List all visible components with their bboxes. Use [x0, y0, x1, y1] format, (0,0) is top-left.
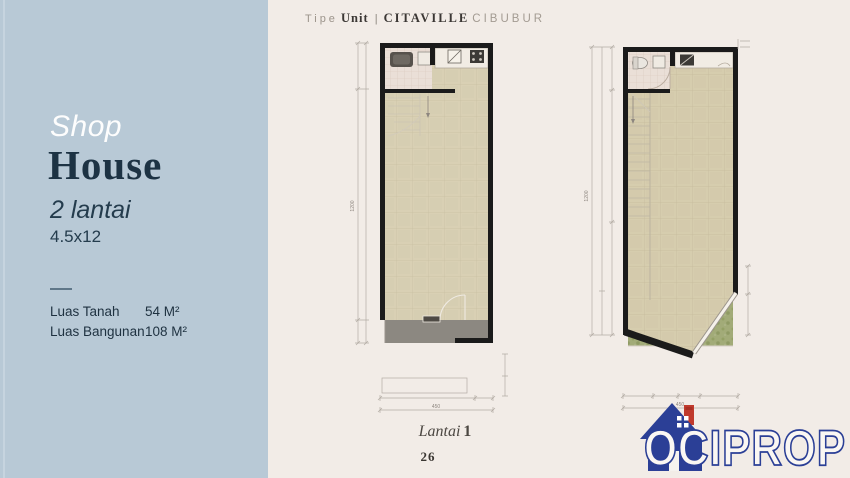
logo-text: OCIPROP [644, 420, 846, 476]
dimension-line-right [738, 39, 751, 337]
spec-value: 108 M² [145, 322, 187, 342]
tiled-floor [628, 52, 733, 352]
title-separator: | [372, 13, 381, 25]
slide: Shop House 2 lantai 4.5x12 Luas Tanah 54… [0, 0, 850, 478]
floor-plan-1: 1200 450 [348, 36, 518, 416]
dimension-lines-left [355, 41, 369, 345]
dimension-line-right [502, 354, 508, 396]
floor-caption: Lantai1 [360, 423, 530, 441]
sidebar: Shop House 2 lantai 4.5x12 Luas Tanah 54… [0, 0, 268, 478]
page-title: Tipe Unit | CITAVILLE CIBUBUR [270, 11, 580, 26]
dim-width-label: 450 [432, 404, 441, 410]
dim-height-label: 1200 [350, 200, 356, 211]
title-house: House [48, 141, 162, 189]
title-brand: CITAVILLE [384, 11, 470, 25]
floor-plan-2: 1200 450 [580, 26, 765, 421]
dimension-lines-left [589, 45, 615, 337]
subtitle-floors: 2 lantai [50, 196, 131, 225]
page-number: 26 [348, 449, 508, 465]
title-tipe: Tipe [305, 13, 338, 25]
stove-icon [470, 50, 484, 63]
sink-icon [418, 52, 431, 65]
sidebar-edge-line [3, 0, 5, 478]
divider-line [50, 288, 72, 290]
subtitle-size: 4.5x12 [50, 227, 101, 247]
spec-value: 54 M² [145, 302, 180, 322]
spec-row-luas-tanah: Luas Tanah 54 M² [50, 302, 250, 322]
dim-height-label: 1200 [584, 190, 590, 201]
title-unit: Unit [341, 11, 369, 25]
floor-caption-label: Lantai [419, 423, 461, 440]
door-threshold [423, 316, 440, 322]
floor-caption-number: 1 [460, 423, 471, 440]
spec-list: Luas Tanah 54 M² Luas Bangunan 108 M² [50, 302, 250, 342]
title-shop: Shop [50, 110, 122, 144]
title-location: CIBUBUR [472, 13, 545, 25]
sink-icon [653, 56, 665, 68]
spec-label: Luas Tanah [50, 302, 145, 322]
spec-row-luas-bangunan: Luas Bangunan 108 M² [50, 322, 250, 342]
spec-label: Luas Bangunan [50, 322, 145, 342]
ociprop-logo: OCIPROP [638, 393, 850, 478]
